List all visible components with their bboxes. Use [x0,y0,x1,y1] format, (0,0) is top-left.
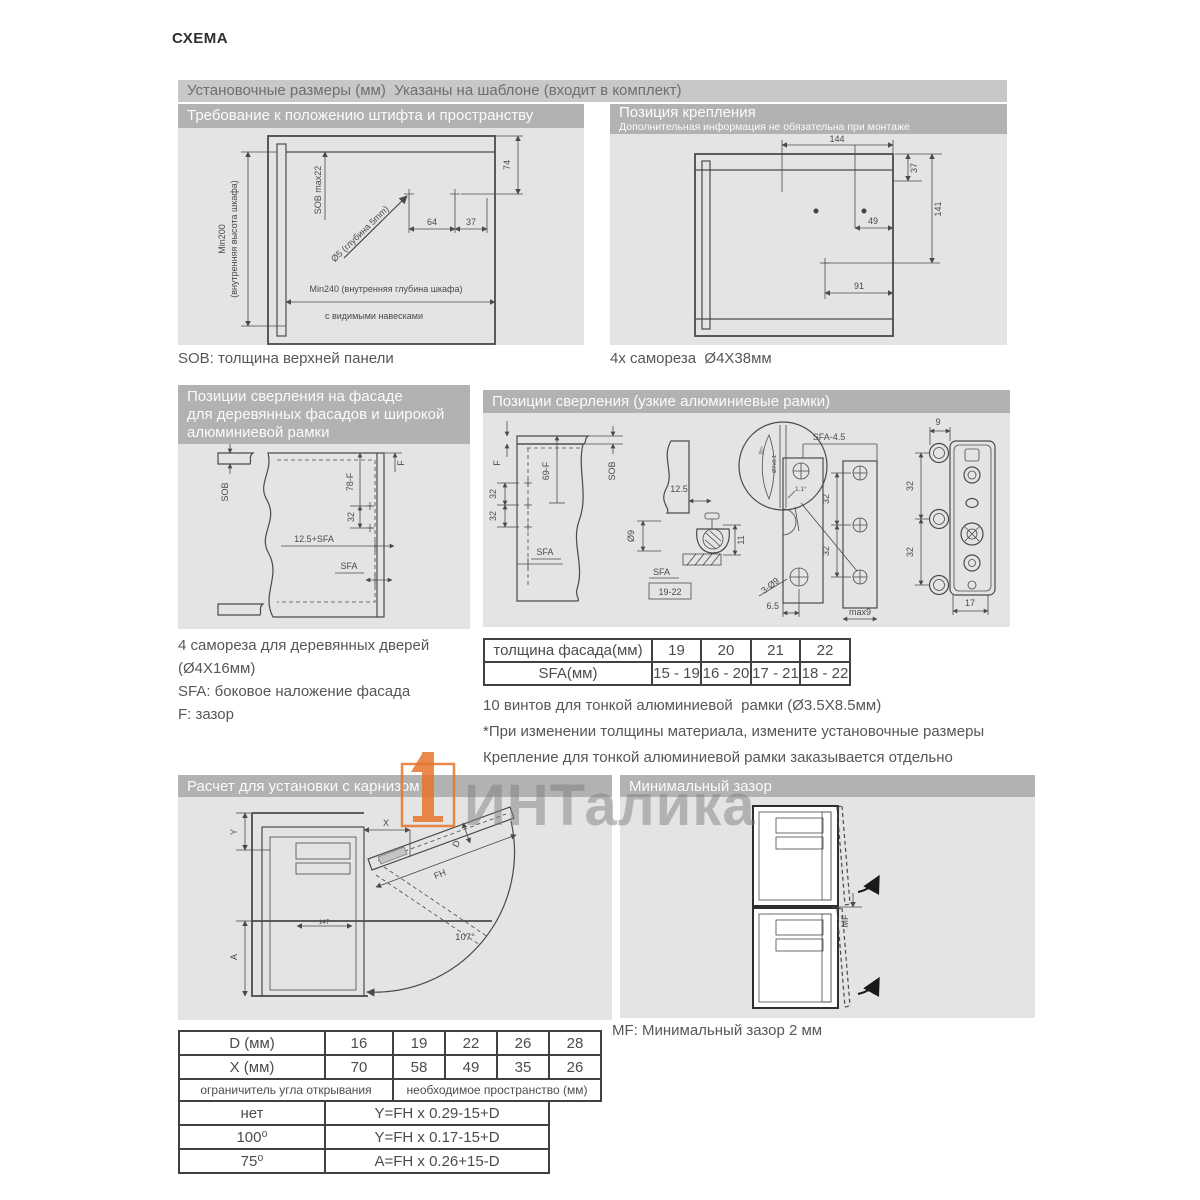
section-pin-drawing: Min200 (внутренняя высота шкафа) SOB max… [178,128,584,345]
formula: A=FH x 0.26+15-D [325,1149,549,1173]
dim-y: Y [229,829,239,835]
dim-32b: 32 [488,511,498,521]
thickness-value: 19 [652,639,701,662]
dim-107deg: 107° [455,932,475,943]
dim-65: 6.5 [766,601,779,611]
x-value: 26 [549,1055,601,1079]
dim-sob: SOB [220,482,230,501]
x-value: 35 [497,1055,549,1079]
angle-limiter-header: ограничитель угла открывания [179,1079,393,1101]
dim-91: 91 [854,281,864,291]
screws-caption: 4x самореза Ø4X38мм [610,350,772,367]
dim-sfa-b: SFA [653,567,670,577]
d-value: 26 [497,1031,549,1055]
dim-d: D [450,838,462,849]
open-arrow-upper [858,878,878,892]
dim-37: 37 [466,217,476,227]
screw-head [705,513,719,519]
section-pin-header: Требование к положению штифта и простран… [178,104,584,128]
label-visible-hinges: с видимыми навесками [325,311,423,321]
sfa-table: толщина фасада(мм) 19 20 21 22 SFA(мм) 1… [483,638,851,686]
hole-marks [524,479,532,531]
alu-note-1: 10 винтов для тонкой алюминиевой рамки (… [483,697,881,714]
min-gap-diagram: MF [620,797,1035,1018]
sfa-range: 15 - 19 [652,662,701,685]
d-value: 16 [325,1031,393,1055]
section-mount-drawing: 144 49 37 141 91 [610,134,1007,345]
dim-min240: Min240 (внутренняя глубина шкафа) [310,284,463,294]
schema-page: СХЕМА Установочные размеры (мм) Указаны … [0,0,1200,1200]
dim-32d: 32 [821,546,831,556]
dim-11s: 1.1° [795,485,807,493]
page-title: СХЕМА [172,30,228,47]
dim-32: 32 [346,512,356,522]
door-panel [277,144,286,336]
dim-sfa-offset: 12.5+SFA [294,534,334,544]
hinge-screws [930,444,949,595]
screw-hole [862,209,867,214]
alu-profile [664,441,689,513]
cabinet-interior [270,837,356,990]
dim-37b: 37 [909,163,919,173]
wood-caption-1: 4 самореза для деревянных дверей [178,637,429,654]
formula: Y=FH x 0.29-15+D [325,1101,549,1125]
limiter-option: 100⁰ [179,1125,325,1149]
mounting-plate-front [783,458,823,603]
dim-17: 17 [965,598,975,608]
wood-caption-4: F: зазор [178,706,234,723]
dim-147: 147 [319,919,330,926]
dim-dia5: Ø5 (глубина 5mm) [329,204,391,264]
pin-position-diagram: Min200 (внутренняя высота шкафа) SOB max… [178,128,584,345]
alu-note-2: *При изменении толщины материала, измени… [483,723,984,740]
dim-sfa: SFA [340,561,357,571]
formula: Y=FH x 0.17-15+D [325,1125,549,1149]
door-edge [702,161,710,329]
alu-frame-diagram: F 69-F SOB 32 32 SFA 12.5 [483,413,1010,627]
dim-69f: 69-F [541,461,551,480]
x-value: 58 [393,1055,445,1079]
top-panel-strip [218,453,253,464]
dim-32e: 32 [905,481,915,491]
sfa-table-header-cell: толщина фасада(мм) [484,639,652,662]
dim-f2: F [492,460,502,466]
wood-caption-2: (Ø4X16мм) [178,660,255,677]
dim-1922: 19-22 [658,587,681,597]
wood-facade-diagram: SOB F 78-F 32 12.5+SFA SFA [178,444,470,629]
dim-min200-note: (внутренняя высота шкафа) [229,180,239,298]
wood-caption-3: SFA: боковое наложение фасада [178,683,410,700]
dim-90deg: 90° [758,446,766,456]
wood-header-line1: Позиции сверления на фасаде [187,388,470,406]
alu-note-3: Крепление для тонкой алюминиевой рамки з… [483,749,953,766]
dim-78f: 78-F [345,472,355,491]
limiter-option: нет [179,1101,325,1125]
thickness-value: 21 [751,639,800,662]
dim-9: 9 [935,417,940,427]
dim-64: 64 [427,217,437,227]
lower-cabinet [753,908,850,1008]
section-mount-header: Позиция крепления Дополнительная информа… [610,104,1007,134]
sfa-range: 17 - 21 [751,662,800,685]
hinge-cup [697,529,730,553]
dim-dia7: Ø7±0.1 [772,455,778,473]
section-alu-drawing: F 69-F SOB 32 32 SFA 12.5 [483,413,1010,627]
screw-hole [814,209,819,214]
calc-table: D (мм) 16 19 22 26 28 X (мм) 70 58 49 35… [178,1030,602,1174]
d-value: 22 [445,1031,497,1055]
wood-header-line2: для деревянных фасадов и широкой [187,406,470,424]
sfa-range: 16 - 20 [701,662,751,685]
opening-arc [367,821,515,992]
top-panel-outline [695,154,893,336]
x-value: 70 [325,1055,393,1079]
section-mount-subtitle: Дополнительная информация не обязательна… [619,121,1007,133]
sfa-row-label: SFA(мм) [484,662,652,685]
plate-holes [853,466,867,584]
door-frame-edge [377,453,384,617]
section-cornice-drawing: Y X D FH A 147 107° [178,797,612,1020]
section-mount-title: Позиция крепления [619,105,1007,121]
bottom-panel-strip [218,604,263,615]
cornice-diagram: Y X D FH A 147 107° [178,797,612,1020]
section-gap-drawing: MF [620,797,1035,1018]
cabinet-box [262,827,364,996]
thickness-value: 22 [800,639,850,662]
dim-dia9: Ø9 [626,530,636,542]
mf-caption: MF: Минимальный зазор 2 мм [612,1022,822,1039]
screw-marks [366,502,374,532]
section-gap-header: Минимальный зазор [620,775,1035,797]
dim-fh: FH [433,867,448,881]
dim-a: A [229,954,239,960]
mounting-plate-side [843,461,877,608]
required-space-header: необходимое пространство (мм) [393,1079,601,1101]
limiter-option: 75⁰ [179,1149,325,1173]
dim-min200: Min200 [217,224,227,254]
x-value: 49 [445,1055,497,1079]
section-alu-header: Позиции сверления (узкие алюминиевые рам… [483,390,1010,413]
section-wood-drawing: SOB F 78-F 32 12.5+SFA SFA [178,444,470,629]
thickness-value: 20 [701,639,751,662]
d-value: 19 [393,1031,445,1055]
section-wood-header: Позиции сверления на фасаде для деревянн… [178,385,470,444]
dim-max9: max9 [849,607,871,617]
wall-and-ceiling [252,813,368,996]
dim-125: 12.5 [670,484,688,494]
dim-sfa45: SFA-4.5 [813,432,846,442]
dim-sob2: SOB [607,461,617,480]
calc-row-label: X (мм) [179,1055,325,1079]
sfa-range: 18 - 22 [800,662,850,685]
drill-line-dashed [527,448,580,588]
mount-position-diagram: 144 49 37 141 91 [610,134,1007,345]
upper-cabinet [753,806,850,906]
pin-hole-marks [404,189,460,199]
dim-74: 74 [502,160,512,170]
dim-32c: 32 [821,494,831,504]
open-arrow-lower [858,980,878,994]
dim-f: F [396,460,406,466]
dim-x: X [383,818,389,828]
hinge-arm-body [950,441,995,595]
sob-caption: SOB: толщина верхней панели [178,350,394,367]
wood-header-line3: алюминиевой рамки [187,424,470,442]
section-cornice-header: Расчет для установки с карнизом [178,775,612,797]
dim-144: 144 [829,134,844,144]
dim-32a: 32 [488,489,498,499]
top-banner: Установочные размеры (мм) Указаны на шаб… [178,80,1007,102]
d-value: 28 [549,1031,601,1055]
dim-141: 141 [933,201,943,216]
dim-sob-max22: SOB max22 [313,166,323,215]
dim-3dia9: 3-Ø9 [759,576,781,596]
dim-mf: MF [840,914,850,927]
calc-row-label: D (мм) [179,1031,325,1055]
dim-49: 49 [868,216,878,226]
dim-32f: 32 [905,547,915,557]
dim-sfa-a: SFA [536,547,553,557]
hatched-block [683,554,721,565]
top-rail [517,436,588,444]
dim-11: 11 [736,535,746,544]
